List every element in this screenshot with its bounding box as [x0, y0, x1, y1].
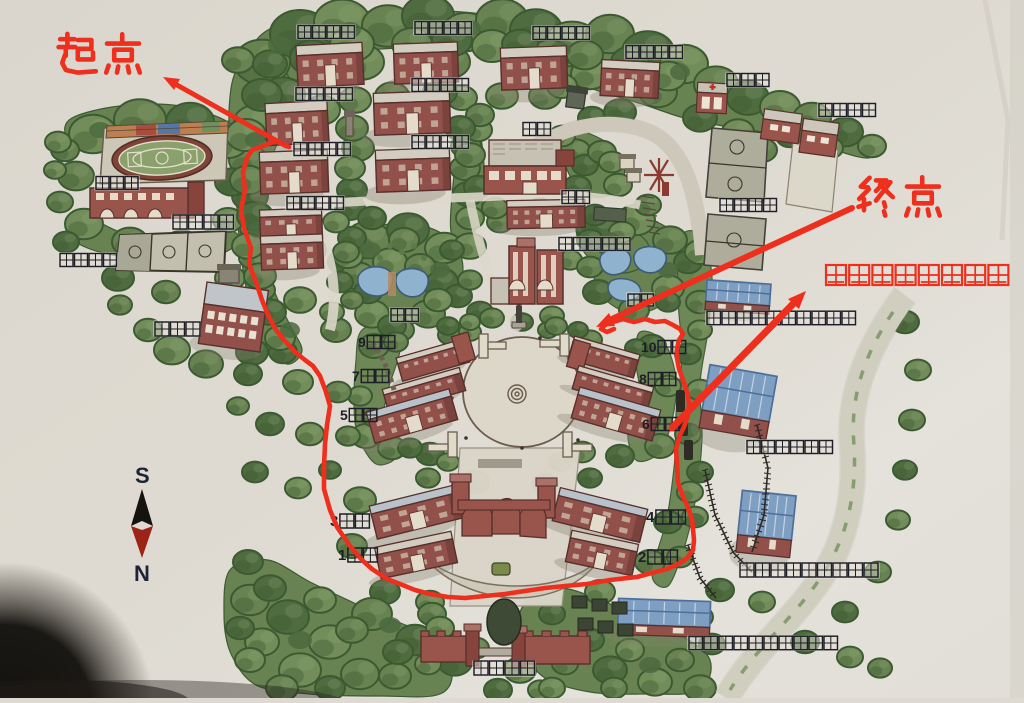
svg-text:9: 9 [358, 334, 366, 350]
svg-text:1: 1 [338, 547, 346, 564]
svg-text:8: 8 [639, 371, 647, 387]
svg-text:7: 7 [352, 368, 360, 384]
svg-text:5: 5 [340, 407, 348, 423]
svg-text:6: 6 [642, 416, 650, 432]
svg-text:10: 10 [641, 339, 657, 355]
svg-text:S: S [135, 463, 150, 488]
svg-text:N: N [134, 561, 150, 586]
svg-text:4: 4 [646, 509, 655, 526]
svg-text:2: 2 [638, 549, 646, 566]
